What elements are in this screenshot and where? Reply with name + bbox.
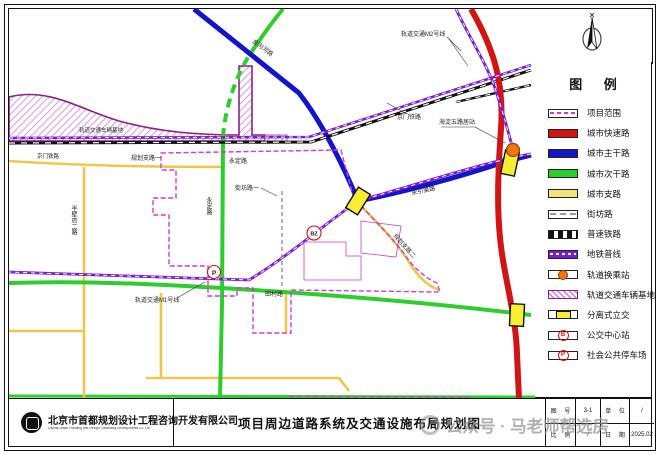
legend-item-depot: 轨道交通车辆基地 (548, 285, 651, 305)
transfer-station-swatch (548, 270, 578, 279)
company-name-en: Capital Urban Planning and Design Consul… (48, 427, 153, 430)
label-yongding-v: 永定路 (205, 196, 212, 216)
scale-value: / (575, 423, 600, 447)
label-railway-west: 京门铁路 (37, 152, 60, 160)
legend-rows: 项目范围 城市快速路 城市主干路 城市次干路 城市支路 街坊路 (535, 103, 651, 365)
road-yongding (220, 137, 223, 399)
drawing-title-cell: 项目周边道路系统及交通设施布局规划图 (174, 399, 545, 446)
label-banbidian: 半壁店二路 (70, 204, 77, 236)
label-station-wuluju: 海淀五路居站 (439, 118, 475, 126)
legend-item-secondary: 城市次干路 (548, 164, 651, 184)
legend-item-interchange: 分离式立交 (548, 305, 651, 325)
label-branch1: 规划支路一 (131, 154, 161, 162)
branch-swatch (548, 189, 578, 198)
rail-transfer-station-icon (507, 144, 520, 157)
svg-text:P: P (212, 270, 217, 277)
secondary-swatch (548, 169, 578, 178)
legend-item-project-scope: 项目范围 (548, 103, 651, 123)
legend-item-arterial: 城市主干路 (548, 143, 651, 163)
label-railway-east: 京门铁路 (397, 113, 421, 121)
metro-line-m1 (9, 154, 531, 280)
label-depot: 轨道交通车辆基地 (79, 126, 124, 134)
road-planned-branch-1 (9, 161, 221, 167)
sheet-no-value: 3-1 (575, 399, 600, 423)
project-scope-swatch (548, 109, 578, 118)
road-tiancun (9, 282, 531, 315)
legend-title: 图 例 (535, 62, 651, 93)
metro-depot-area (9, 66, 287, 141)
public-parking-icon: P (208, 266, 221, 279)
compass-box (535, 8, 653, 64)
label-metro-m1: 轨道交通M1号线 (135, 296, 179, 304)
planning-drawing-page: BZ P 轨道交通车辆基地 京门铁路 京门铁路 轨道交通M2 (0, 0, 660, 455)
unit-value: / (629, 399, 654, 423)
company-logo-icon (21, 412, 42, 433)
legend-item-branch: 城市支路 (548, 184, 651, 204)
legend-item-expressway: 城市快速路 (548, 123, 651, 143)
bus-center-swatch: B (548, 331, 578, 340)
interchange-swatch (548, 310, 578, 319)
drawing-title: 项目周边道路系统及交通设施布局规划图 (238, 413, 481, 432)
legend-item-bus-center: B 公交中心站 (548, 325, 651, 345)
svg-text:BZ: BZ (310, 232, 318, 238)
road-bottom-secondary (9, 396, 536, 397)
label-yongding-h: 永定路 (229, 157, 247, 165)
label-jiefang1: 街坊路一 (235, 184, 259, 192)
interchange-south (509, 304, 524, 327)
label-metro-m2: 轨道交通M2号线 (401, 30, 445, 38)
map-canvas: BZ P 轨道交通车辆基地 京门铁路 京门铁路 轨道交通M2 (8, 8, 537, 400)
label-tiancun-road: 田村路 (265, 290, 283, 298)
scale-label: 比 例 (546, 423, 575, 447)
map-svg: BZ P 轨道交通车辆基地 京门铁路 京门铁路 轨道交通M2 (9, 9, 536, 399)
road-jingouhe (194, 9, 358, 201)
railway-swatch (548, 230, 578, 239)
depot-swatch (548, 290, 578, 299)
sheet-no-label: 图 号 (546, 399, 575, 423)
title-block: 北京市首都规划设计工程咨询开发有限公司 Capital Urban Planni… (8, 398, 652, 447)
parking-swatch: P (548, 351, 578, 360)
expressway-swatch (548, 129, 578, 138)
road-expressway (471, 9, 519, 399)
neighborhood-swatch (548, 210, 578, 219)
right-column: 图 例 项目范围 城市快速路 城市主干路 城市次干路 城市支路 (535, 8, 652, 398)
date-label: 日 期 (600, 423, 629, 447)
sheet-info-table: 图 号 3-1 单 位 / 比 例 / 日 期 2025.02 (545, 399, 653, 446)
plot-outline (304, 242, 361, 280)
company-cell: 北京市首都规划设计工程咨询开发有限公司 Capital Urban Planni… (9, 399, 174, 446)
date-value: 2025.02 (629, 423, 654, 447)
legend-item-railway: 普速铁路 (548, 224, 651, 244)
metro-swatch (548, 250, 578, 259)
north-arrow-icon (535, 9, 650, 61)
unit-label: 单 位 (600, 399, 629, 423)
legend-item-metro: 地铁普线 (548, 244, 651, 264)
legend-item-transfer: 轨道换乘站 (548, 265, 651, 285)
bus-center-icon: BZ (307, 226, 321, 240)
legend: 图 例 项目范围 城市快速路 城市主干路 城市次干路 城市支路 (535, 62, 652, 398)
arterial-swatch (548, 149, 578, 158)
legend-item-parking: P 社会公共停车场 (548, 345, 651, 365)
legend-item-neighborhood: 街坊路 (548, 204, 651, 224)
